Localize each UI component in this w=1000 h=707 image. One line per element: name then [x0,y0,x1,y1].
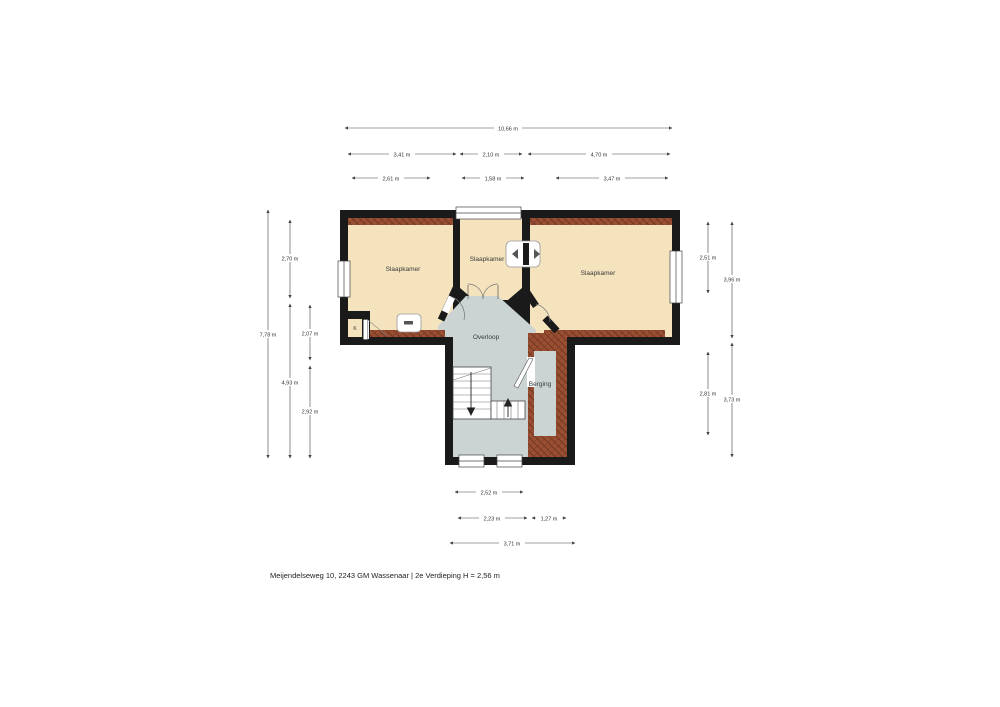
label-bedroom-right: Slaapkamer [581,270,617,277]
dim-top-total: 10,66 m [345,125,672,133]
dim-left-seg-1: 2,70 m [278,220,302,298]
roof-window-icon-pair [506,241,540,267]
svg-text:1,27 m: 1,27 m [541,516,558,522]
svg-text:2,51 m: 2,51 m [700,255,717,261]
svg-text:3,41 m: 3,41 m [394,152,411,158]
svg-text:2,92 m: 2,92 m [302,409,319,415]
svg-text:2,70 m: 2,70 m [282,256,299,262]
window-top [456,207,521,219]
svg-text:2,61 m: 2,61 m [383,176,400,182]
dim-top-inner-2: 1,58 m [462,175,524,183]
closet-door-leaf [364,320,368,340]
dim-top-inner-3: 3,47 m [556,175,668,183]
svg-text:1,58 m: 1,58 m [485,176,502,182]
label-landing: Overloop [473,334,500,341]
window-bottom-1 [459,455,484,467]
svg-text:3,71 m: 3,71 m [504,541,521,547]
svg-text:4,70 m: 4,70 m [591,152,608,158]
svg-text:2,81 m: 2,81 m [700,391,717,397]
label-storage: Berging [529,381,552,388]
label-bedroom-middle: Slaapkamer [470,256,506,263]
dim-top-seg-2: 2,10 m [460,151,522,159]
window-right [670,251,682,303]
dim-top-inner-1: 2,61 m [352,175,430,183]
bedroom-right-floor [530,218,672,337]
dim-bottom-stair-width: 2,52 m [455,489,523,497]
svg-text:4,93 m: 4,93 m [282,380,299,386]
window-left [338,261,350,297]
floorplan-page: Slaapkamer Slaapkamer Slaapkamer Overloo… [0,0,1000,707]
svg-text:2,07 m: 2,07 m [302,331,319,337]
dim-bottom-seg-1: 2,23 m [458,515,527,523]
floorplan-drawing: Slaapkamer Slaapkamer Slaapkamer Overloo… [0,0,1000,707]
svg-text:3,73 m: 3,73 m [724,397,741,403]
roof-window-icon-left [397,314,421,332]
dim-top-seg-1: 3,41 m [348,151,456,159]
dim-right-inner-1: 2,51 m [696,222,720,293]
dim-right-inner-2: 2,81 m [696,352,720,435]
dim-left-seg-2: 4,93 m [278,304,302,458]
dim-left-inner-1: 2,07 m [298,305,322,360]
svg-text:2,23 m: 2,23 m [484,516,501,522]
window-bottom-2 [497,455,522,467]
svg-text:2,10 m: 2,10 m [483,152,500,158]
dim-top-seg-3: 4,70 m [528,151,670,159]
svg-text:7,78 m: 7,78 m [260,332,277,338]
svg-text:3,96 m: 3,96 m [724,277,741,283]
dim-left-total: 7,78 m [256,210,280,458]
storage-floor [534,351,556,436]
svg-text:2,52 m: 2,52 m [481,490,498,496]
dim-bottom-total: 3,71 m [450,540,575,548]
label-bedroom-left: Slaapkamer [386,266,422,273]
dim-right-outer-2: 3,73 m [720,343,744,457]
address-caption: Meijendelseweg 10, 2243 GM Wassenaar | 2… [270,571,500,580]
dim-right-outer-1: 3,96 m [720,222,744,338]
svg-text:3,47 m: 3,47 m [604,176,621,182]
svg-text:10,66 m: 10,66 m [498,126,518,132]
dim-bottom-seg-2: 1,27 m [532,515,566,523]
